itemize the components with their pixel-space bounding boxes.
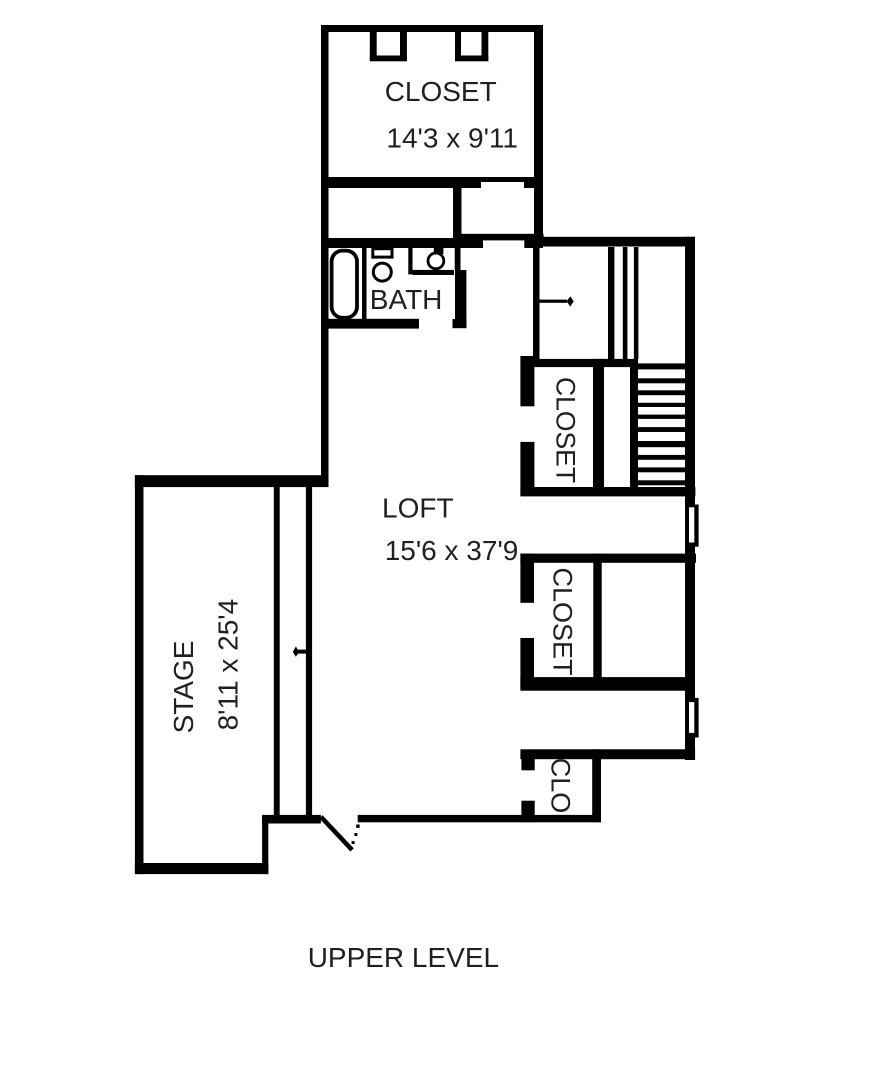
- svg-text:STAGE: STAGE: [168, 641, 199, 734]
- svg-text:15'6 x 37'9: 15'6 x 37'9: [385, 535, 519, 566]
- svg-text:CLO: CLO: [546, 758, 576, 814]
- svg-text:UPPER LEVEL: UPPER LEVEL: [308, 942, 499, 973]
- svg-text:BATH: BATH: [370, 284, 443, 315]
- svg-text:CLOSET: CLOSET: [385, 76, 497, 107]
- svg-text:LOFT: LOFT: [382, 493, 454, 524]
- svg-text:14'3 x 9'11: 14'3 x 9'11: [386, 123, 518, 154]
- svg-text:8'11 x 25'4: 8'11 x 25'4: [212, 599, 243, 731]
- svg-text:CLOSET: CLOSET: [548, 567, 578, 675]
- svg-text:CLOSET: CLOSET: [551, 377, 581, 483]
